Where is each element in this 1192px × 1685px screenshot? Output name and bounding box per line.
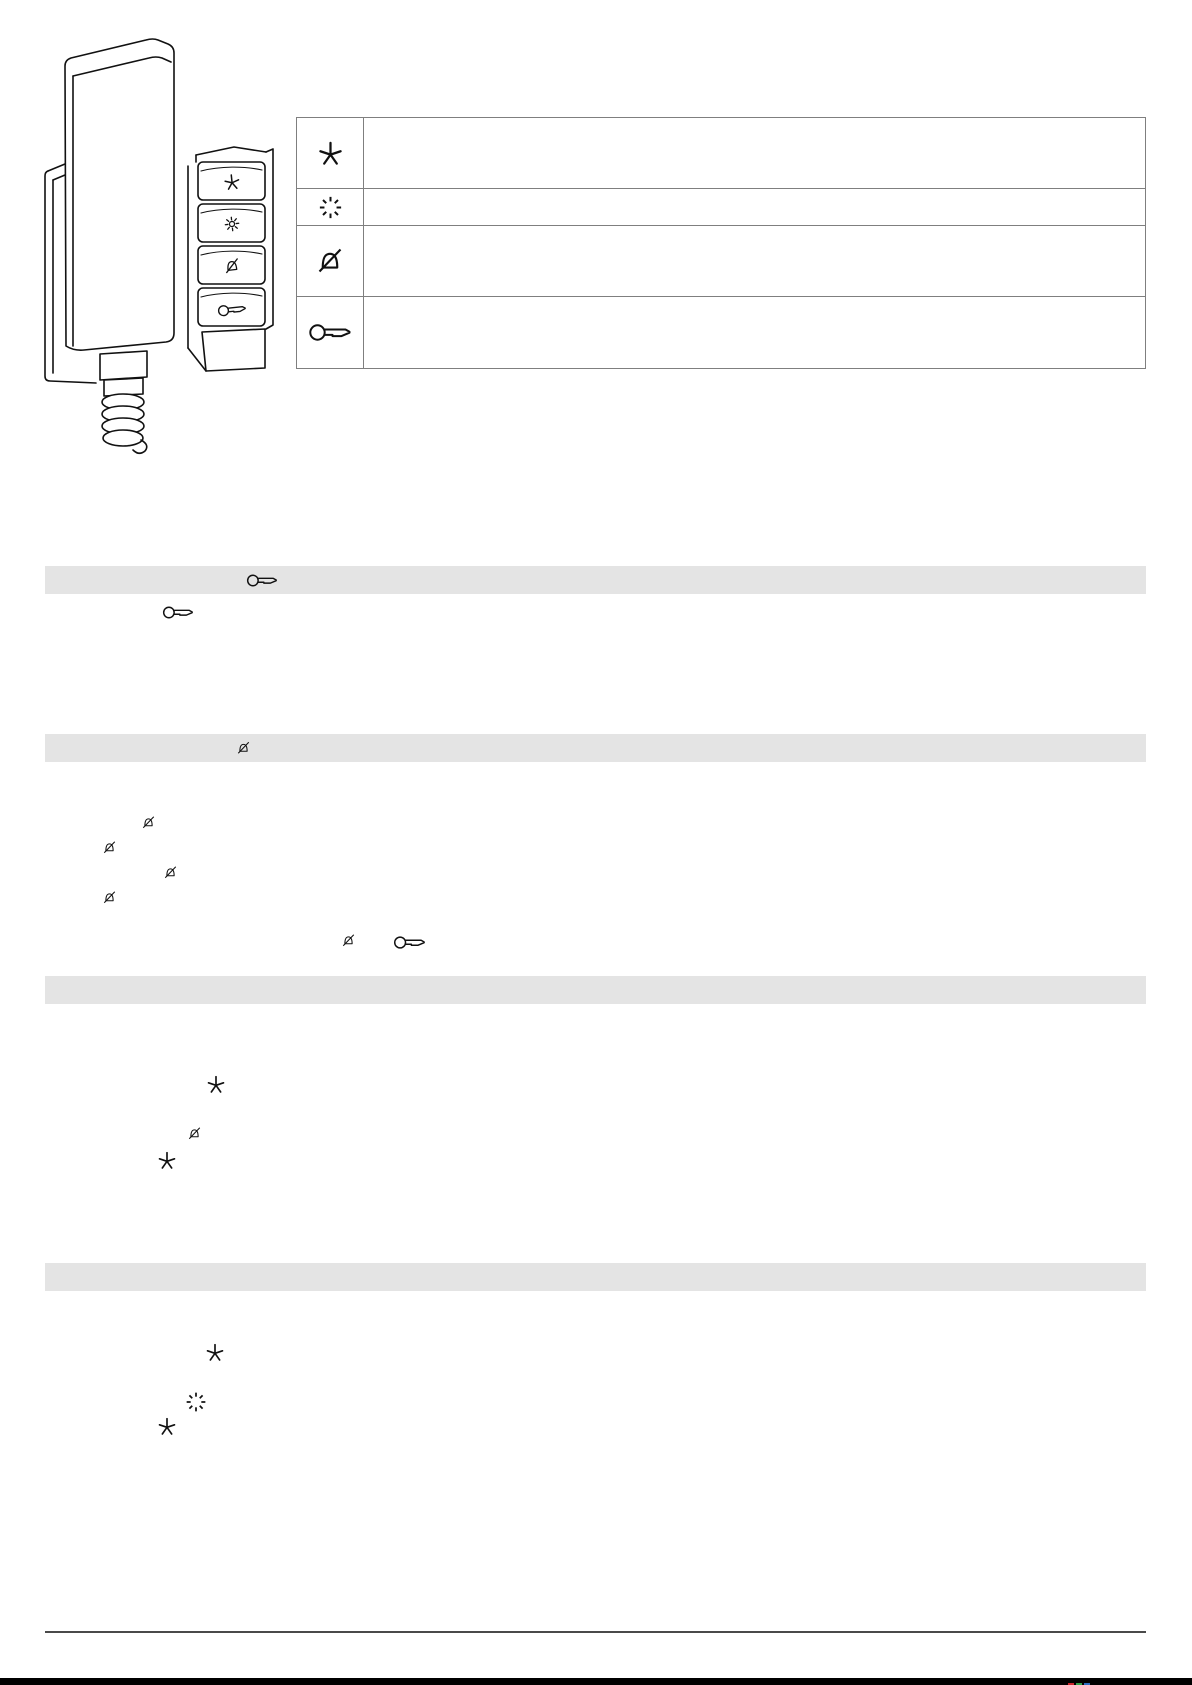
legend-row — [297, 225, 1145, 296]
blink-icon — [318, 195, 343, 220]
handset-body — [65, 39, 174, 350]
ringer-off-icon — [102, 888, 117, 907]
ringer-off-icon — [315, 246, 345, 276]
blink-icon — [185, 1391, 207, 1413]
device-illustration — [38, 30, 278, 460]
door-release-button — [198, 288, 265, 326]
legend-row — [297, 188, 1145, 225]
star-icon — [157, 1150, 177, 1171]
legend-text — [364, 189, 1145, 225]
section-bar-3 — [45, 976, 1146, 1004]
legend-text — [364, 297, 1145, 368]
star-icon — [317, 140, 344, 167]
star-icon — [157, 1416, 177, 1437]
legend-row — [297, 118, 1145, 188]
ringer-off-icon — [102, 838, 117, 857]
legend-row — [297, 296, 1145, 368]
legend-text — [364, 118, 1145, 188]
cradle-block — [100, 351, 147, 396]
button-panel — [196, 147, 273, 371]
section-bar-4 — [45, 1263, 1146, 1291]
star-button — [198, 162, 265, 200]
section-bar-1 — [45, 566, 1146, 594]
legend-table — [296, 117, 1146, 369]
ringer-off-icon — [341, 931, 356, 950]
section-bar-2 — [45, 734, 1146, 762]
light-button — [198, 204, 265, 242]
star-icon — [206, 1074, 226, 1095]
door-key-icon — [246, 573, 278, 588]
ringer-off-icon — [163, 863, 178, 882]
door-key-icon — [393, 935, 426, 950]
footer-print-bar — [0, 1678, 1192, 1685]
ringer-off-button — [198, 246, 265, 284]
footer-rule — [45, 1631, 1146, 1633]
ringer-off-icon — [236, 737, 251, 759]
spiral-cord — [102, 394, 147, 453]
door-key-icon — [162, 605, 194, 620]
manual-page — [0, 0, 1192, 1685]
door-key-icon — [308, 322, 352, 343]
ringer-off-icon — [141, 813, 156, 832]
ringer-off-icon — [187, 1124, 202, 1143]
legend-text — [364, 226, 1145, 296]
star-icon — [205, 1342, 225, 1363]
